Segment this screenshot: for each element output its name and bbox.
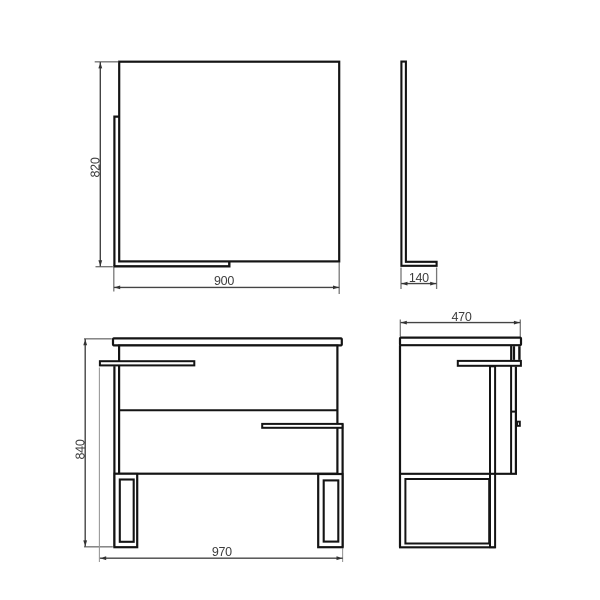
svg-text:970: 970 [212,545,232,559]
svg-text:840: 840 [74,439,88,459]
svg-text:900: 900 [214,274,234,288]
svg-text:470: 470 [452,310,472,324]
svg-text:820: 820 [89,157,103,177]
svg-text:140: 140 [409,271,429,285]
